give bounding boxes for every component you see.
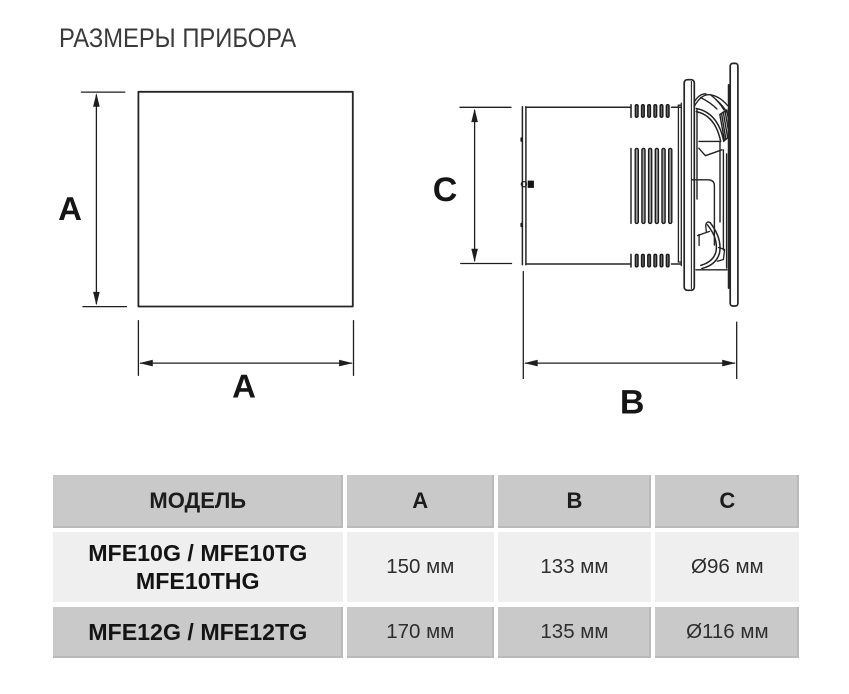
svg-text:B: B (620, 384, 645, 422)
svg-text:C: C (433, 171, 458, 209)
svg-text:A: A (58, 190, 82, 227)
svg-text:A: A (232, 367, 256, 404)
